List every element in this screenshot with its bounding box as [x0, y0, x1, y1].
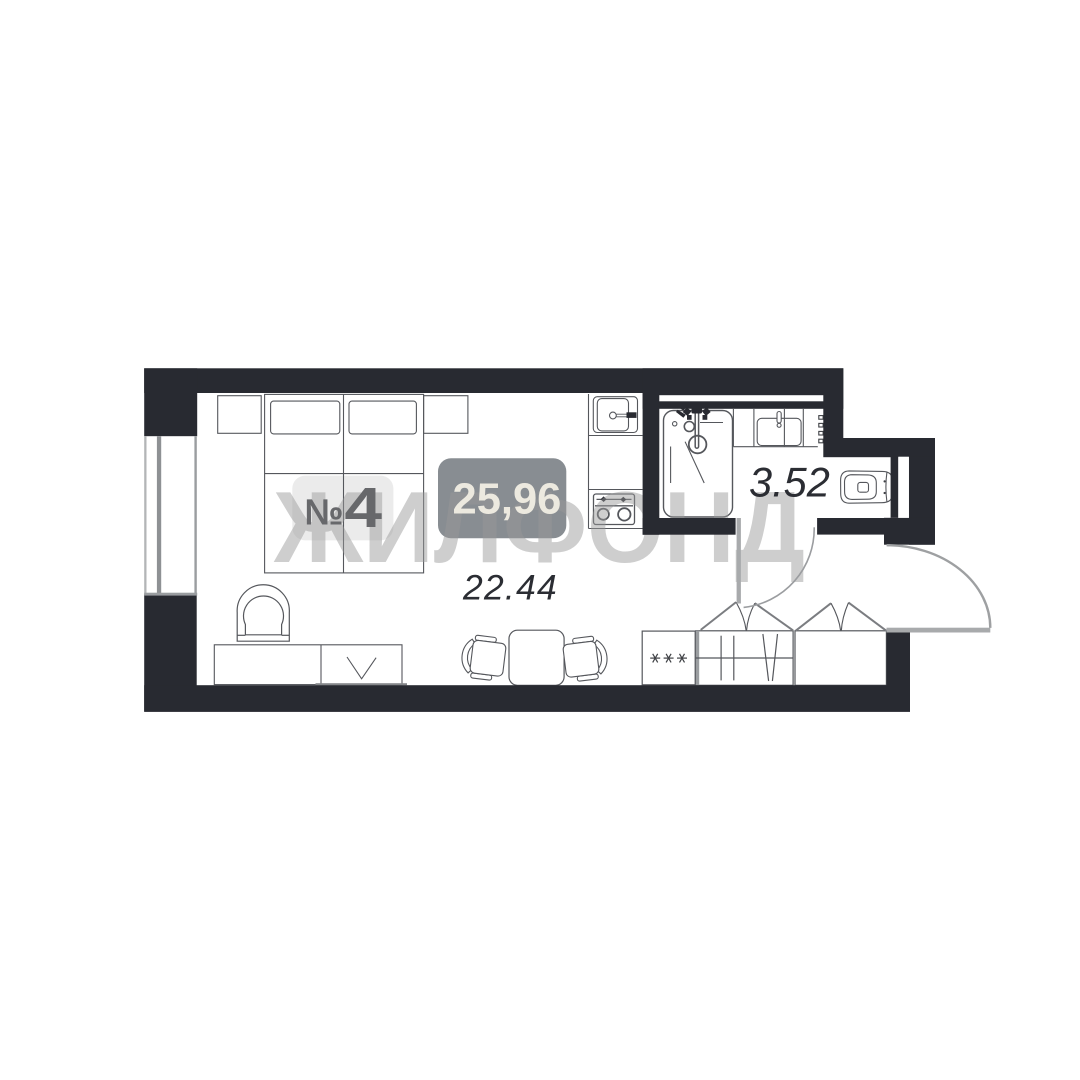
- svg-text:№: №: [305, 492, 344, 533]
- svg-text:25,96: 25,96: [453, 476, 562, 524]
- svg-text:3.52: 3.52: [749, 459, 830, 506]
- svg-text:22.44: 22.44: [462, 568, 558, 608]
- svg-text:4: 4: [345, 476, 383, 540]
